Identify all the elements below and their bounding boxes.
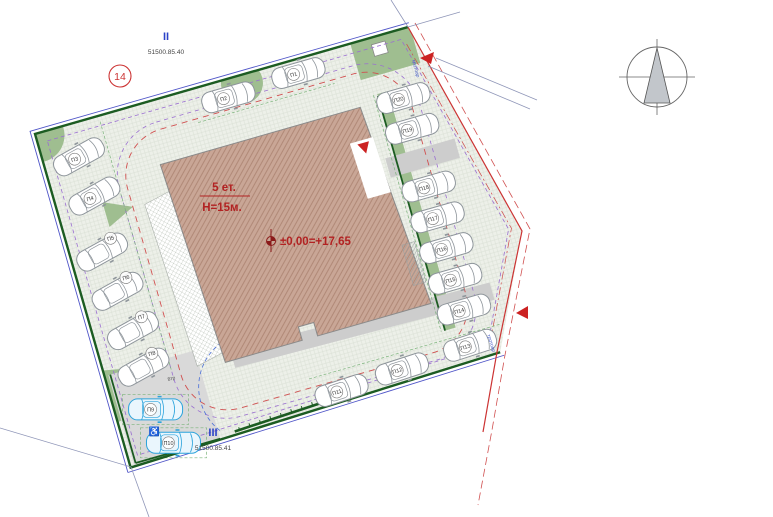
parcel-bottom-roman: III [208, 427, 217, 439]
site-plan-canvas: П1 П2 П3 П4 П5 П6 П7 П8 [0, 0, 773, 517]
parcel-bottom-cadastral: 51500.85.41 [195, 445, 232, 452]
parking-spot-accessible: П9 [129, 397, 183, 423]
spot-label: П9 [147, 407, 154, 413]
entrance-arrow-icon [516, 306, 528, 319]
parcel-top-roman: II [163, 31, 169, 43]
north-arrow-icon [619, 39, 695, 115]
spot-label: П10 [163, 441, 173, 447]
parcel-top-cadastral: 51500.85.40 [148, 49, 185, 56]
plot-number-label: 14 [114, 71, 126, 83]
building-level-label: ±0,00=+17,65 [280, 236, 352, 248]
building-floors-label: 5 ет. [212, 182, 236, 194]
accessible-icon: ♿ [149, 426, 160, 437]
plot-number-badge: 14 [109, 65, 131, 87]
building-height-label: Н=15м. [202, 202, 242, 214]
site-plan-drawing: П1 П2 П3 П4 П5 П6 П7 П8 [0, 0, 773, 517]
